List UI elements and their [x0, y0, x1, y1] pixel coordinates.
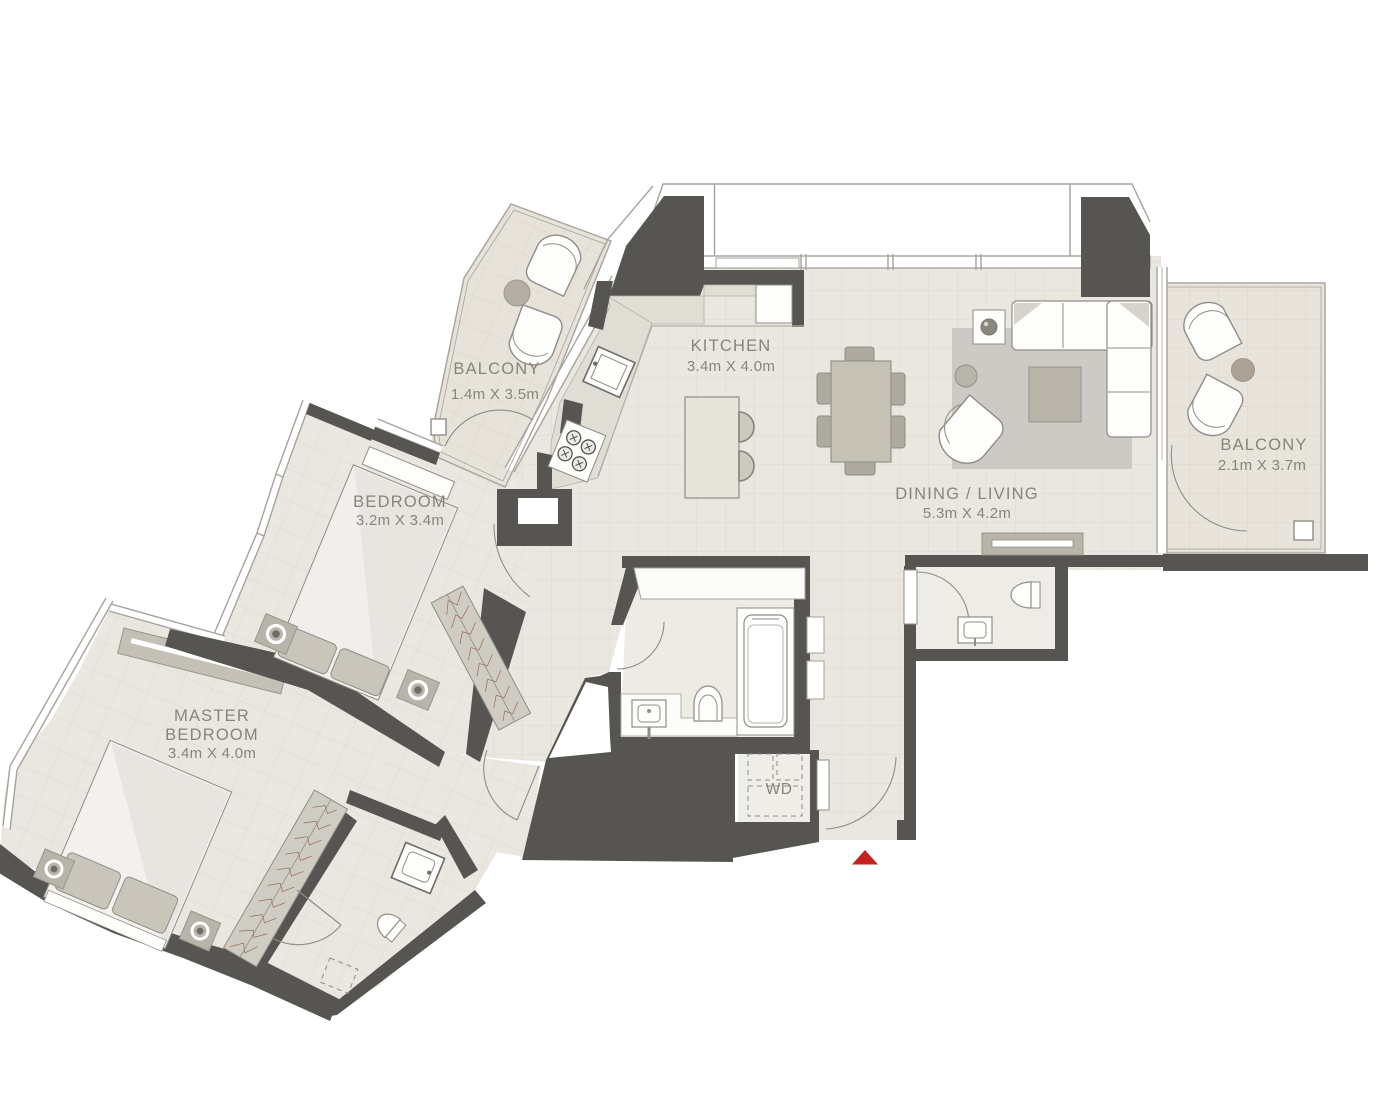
svg-text:1.4m X 3.5m: 1.4m X 3.5m — [451, 386, 539, 403]
svg-text:BALCONY: BALCONY — [1220, 436, 1307, 454]
svg-text:DINING / LIVING: DINING / LIVING — [895, 485, 1039, 503]
svg-text:WD: WD — [766, 781, 793, 798]
svg-text:BEDROOM: BEDROOM — [165, 726, 259, 744]
svg-text:BALCONY: BALCONY — [453, 360, 540, 378]
svg-text:3.2m X 3.4m: 3.2m X 3.4m — [356, 512, 444, 529]
svg-text:5.3m X 4.2m: 5.3m X 4.2m — [923, 505, 1011, 522]
svg-text:3.4m X 4.0m: 3.4m X 4.0m — [687, 358, 775, 375]
svg-text:KITCHEN: KITCHEN — [691, 337, 772, 355]
svg-text:3.4m X 4.0m: 3.4m X 4.0m — [168, 745, 256, 762]
svg-text:BEDROOM: BEDROOM — [353, 493, 447, 511]
svg-text:MASTER: MASTER — [174, 707, 250, 725]
svg-text:2.1m X 3.7m: 2.1m X 3.7m — [1218, 457, 1306, 474]
